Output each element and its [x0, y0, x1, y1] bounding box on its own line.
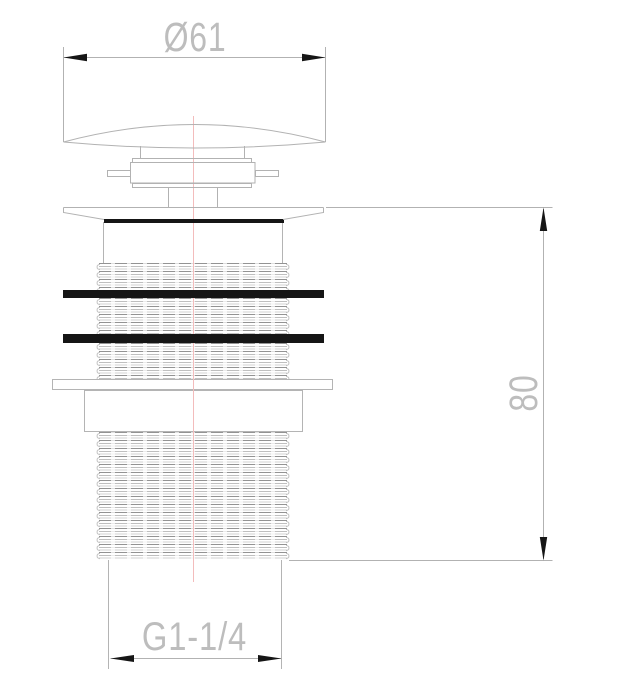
- arrowhead-left-icon: [64, 54, 88, 61]
- arrowhead-down-icon: [540, 537, 547, 561]
- height-dimension-label: 80: [504, 368, 544, 418]
- arrowhead-up-icon: [540, 208, 547, 232]
- thread-dimension-label: G1-1/4: [132, 615, 257, 660]
- rubber-washer-upper: [63, 290, 324, 298]
- drawing-canvas: Ø61 80 G1-1/4: [0, 0, 631, 700]
- diameter-dimension-label: Ø61: [147, 14, 244, 61]
- cap-outline: [64, 47, 326, 148]
- side-pin-left: [108, 171, 131, 177]
- side-pin-right: [256, 171, 279, 177]
- flange-gasket-seal: [104, 219, 284, 223]
- rubber-washer-lower: [63, 334, 324, 343]
- centerline: [193, 116, 194, 582]
- arrowhead-right-icon: [302, 54, 326, 61]
